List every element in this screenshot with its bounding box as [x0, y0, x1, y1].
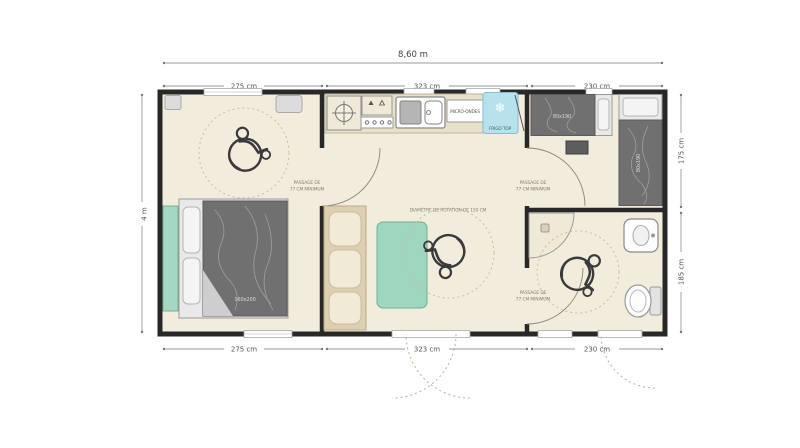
water-heater	[327, 96, 361, 130]
dimension-top-overall: 8,60 m	[163, 50, 663, 64]
kitchen: MICRO-ONDES ❄ FRIGO TOP	[325, 93, 524, 134]
drainer	[400, 101, 421, 124]
washbasin	[624, 219, 658, 252]
entrance-door-opening	[392, 331, 470, 338]
cushion	[329, 212, 361, 246]
bench-sofa	[324, 206, 366, 330]
double-bed-size-label: 160x200	[234, 297, 255, 303]
passage-note-line2: 77 CM MINIMUM	[290, 187, 325, 193]
sink	[396, 97, 445, 128]
faucet-icon	[651, 234, 655, 238]
fridge: ❄ FRIGO TOP	[483, 93, 524, 134]
pillow	[183, 258, 200, 304]
dimension-right: 175 cm 185 cm	[678, 94, 686, 333]
pillow	[598, 99, 609, 130]
dining-table	[377, 222, 427, 308]
window	[538, 331, 572, 338]
microwave-label: MICRO-ONDES	[450, 109, 480, 115]
cushion	[329, 292, 361, 324]
drain	[541, 224, 549, 232]
microwave: MICRO-ONDES	[447, 100, 483, 122]
hob	[361, 96, 393, 128]
single-bed-top: 80x190	[531, 95, 612, 136]
passage-note-line2: 77 CM MINIMUM	[516, 297, 551, 303]
window	[598, 331, 642, 338]
overall-width-label: 8,60 m	[398, 50, 428, 60]
passage-note-line1: PASSAGE DE	[294, 180, 321, 186]
snowflake-icon: ❄	[495, 101, 506, 116]
single-bed-size-label: 80x190	[636, 154, 642, 172]
tv-unit	[566, 141, 588, 154]
overall-depth-label: 4 m	[141, 207, 149, 221]
floor-plan-page: 8,60 m 275 cm 323 cm 230 cm 4 m 175 cm 1…	[0, 0, 800, 448]
fridge-label: FRIGO TOP	[489, 126, 512, 132]
passage-note-line1: PASSAGE DE	[520, 180, 547, 186]
bottom-segment-1-label: 275 cm	[231, 346, 257, 354]
right-segment-2-label: 185 cm	[678, 259, 686, 285]
entrance-door-swings	[392, 334, 655, 398]
passage-note-line1: PASSAGE DE	[520, 290, 547, 296]
dimension-bottom-segments: 275 cm 323 cm 230 cm	[163, 346, 663, 354]
headboard	[163, 206, 178, 311]
dimension-left: 4 m	[141, 94, 149, 333]
passage-note-line2: 77 CM MINIMUM	[516, 187, 551, 193]
cushion	[329, 250, 361, 288]
bottom-segment-2-label: 323 cm	[414, 346, 440, 354]
faucet-icon	[427, 111, 431, 115]
right-segment-1-label: 175 cm	[678, 138, 686, 164]
nightstand	[276, 96, 302, 113]
single-bed-right: 80x190	[619, 95, 662, 206]
bottom-segment-3-label: 230 cm	[584, 346, 610, 354]
single-bed-size-label: 80x190	[553, 114, 571, 120]
floor-plan-drawing: 8,60 m 275 cm 323 cm 230 cm 4 m 175 cm 1…	[0, 0, 800, 448]
pillow	[623, 98, 658, 116]
toilet	[625, 285, 661, 317]
nightstand	[165, 96, 181, 110]
pillow	[183, 207, 200, 253]
